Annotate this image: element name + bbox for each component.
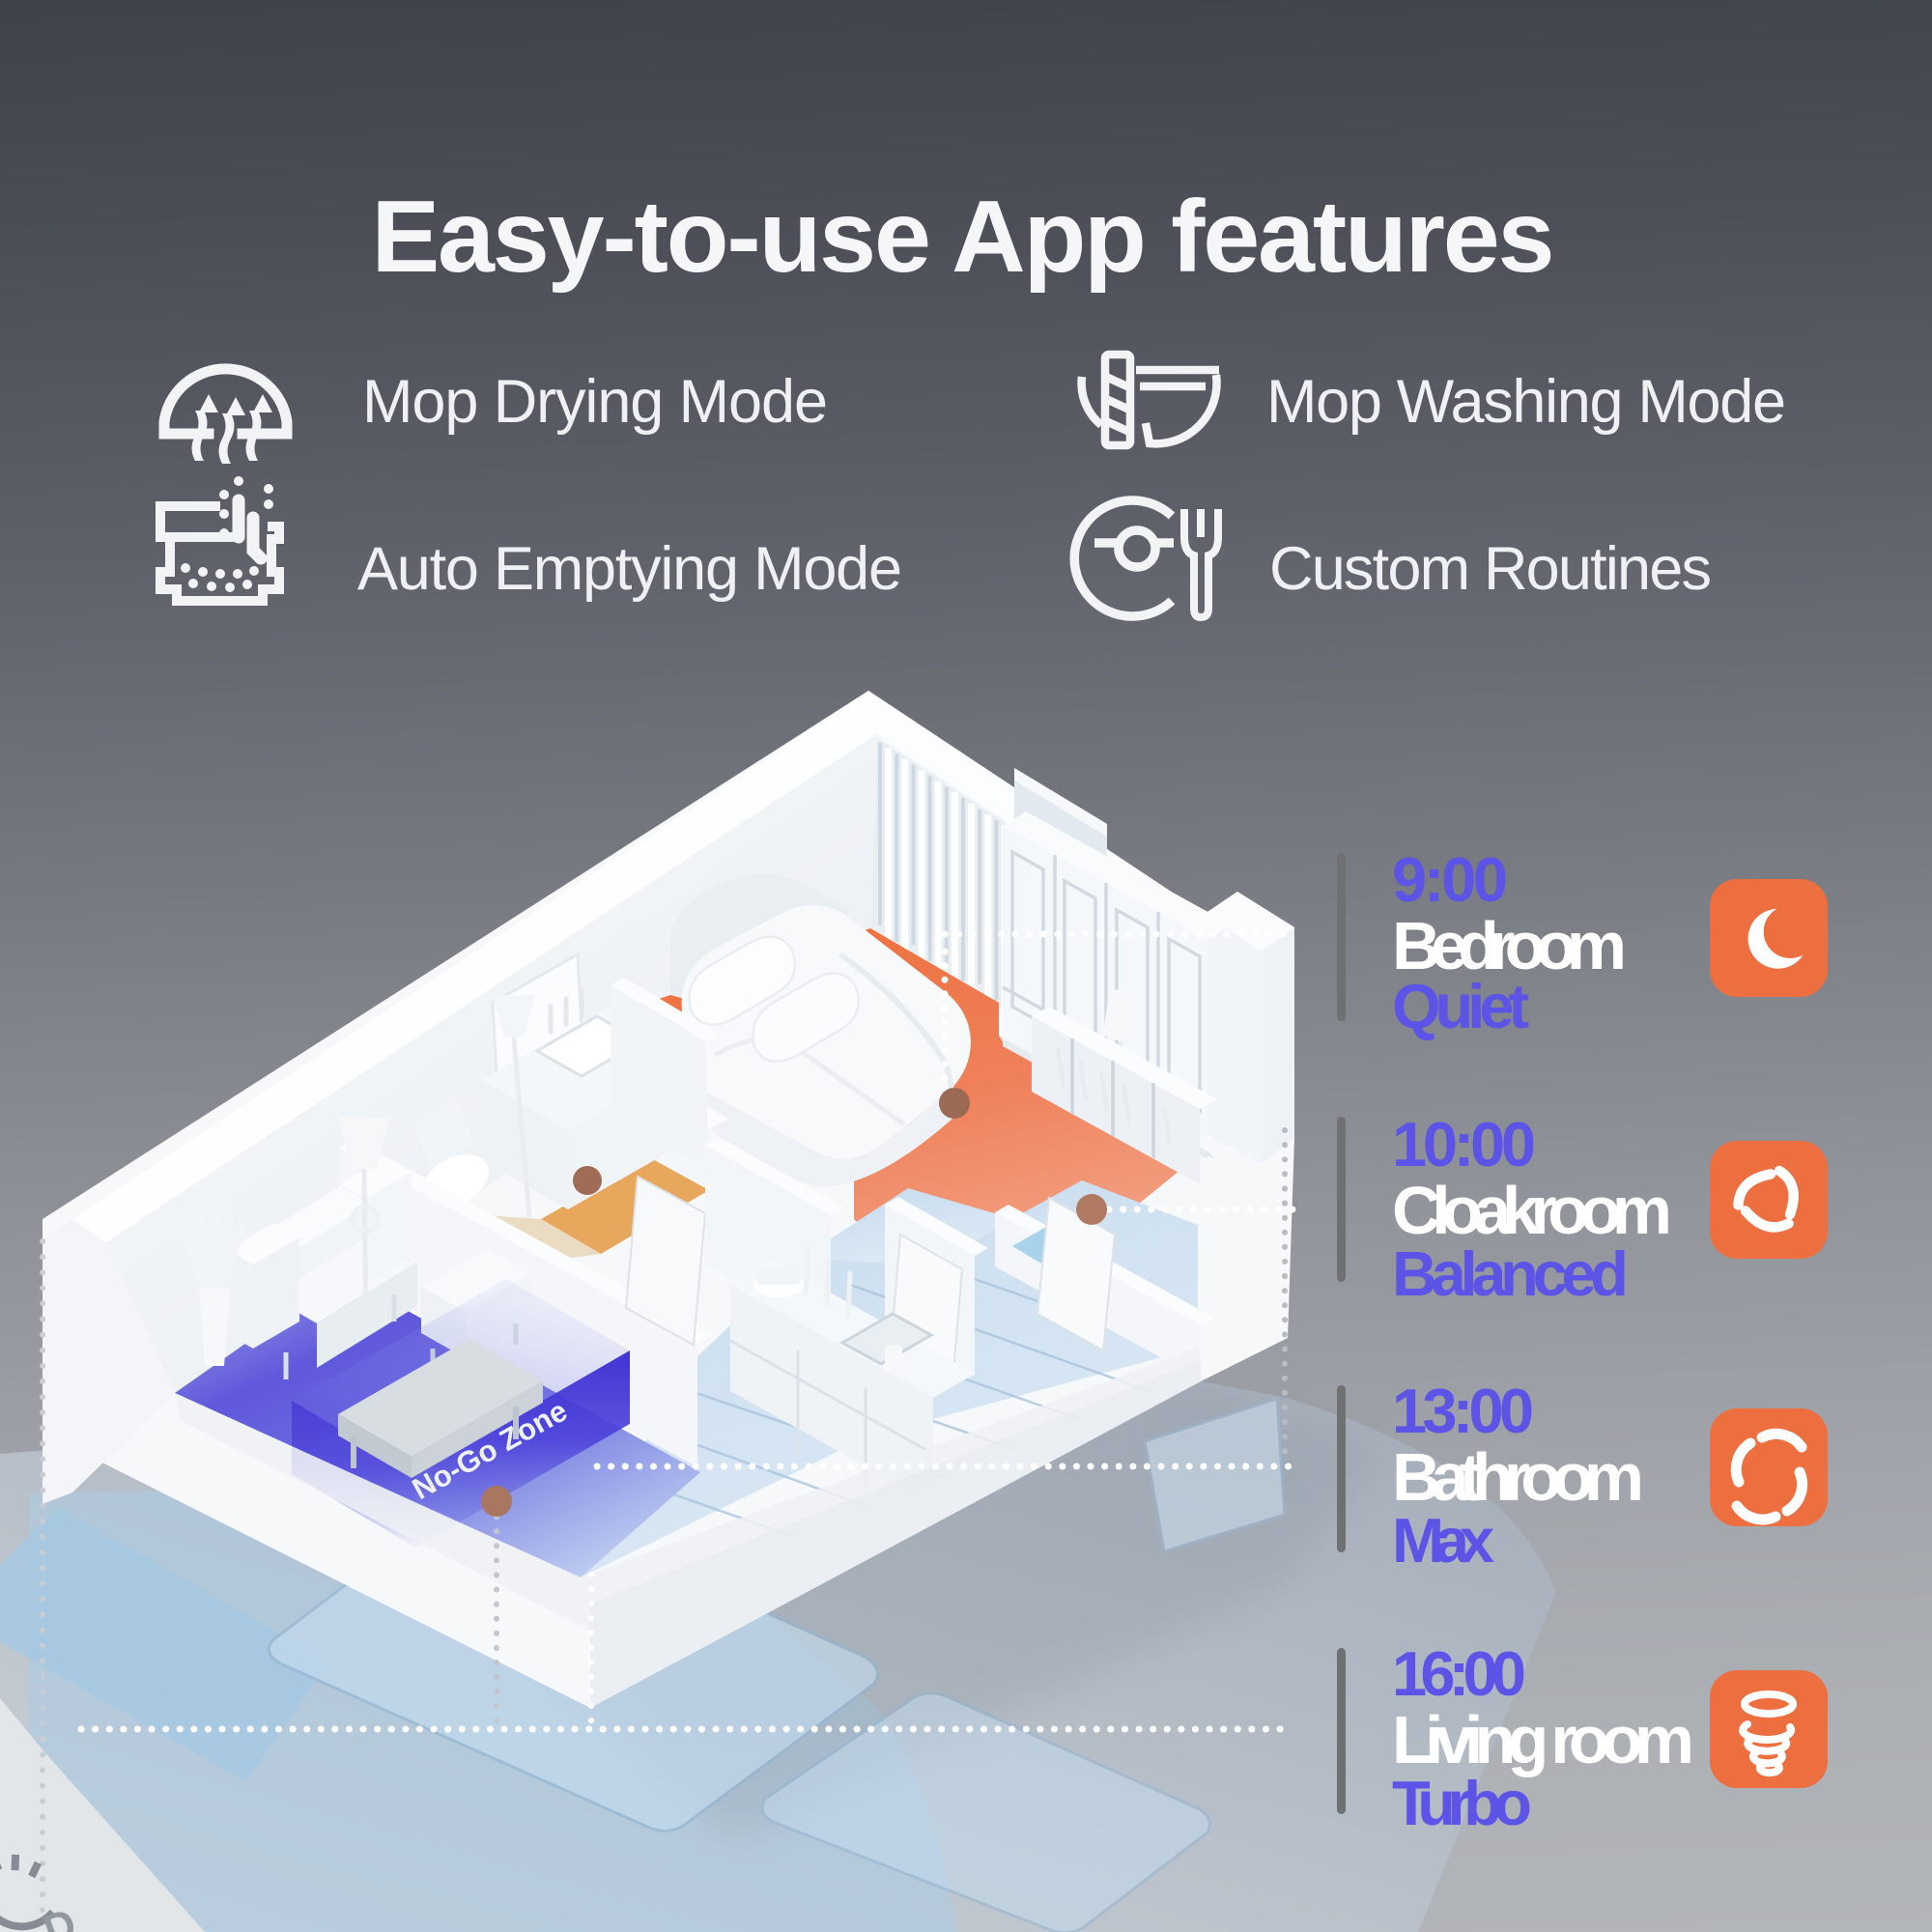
svg-text:Mop Drying Mode: Mop Drying Mode	[362, 368, 828, 436]
svg-text:13:00: 13:00	[1392, 1376, 1534, 1446]
svg-text:Custom Routines: Custom Routines	[1269, 535, 1712, 603]
svg-text:10:00: 10:00	[1392, 1109, 1536, 1179]
svg-text:Mop Washing Mode: Mop Washing Mode	[1266, 368, 1786, 436]
svg-text:Bathroom: Bathroom	[1392, 1439, 1644, 1515]
svg-text:9:00: 9:00	[1392, 844, 1508, 915]
svg-text:Cloakroom: Cloakroom	[1392, 1173, 1672, 1248]
svg-text:Quiet: Quiet	[1392, 971, 1529, 1041]
svg-text:Balanced: Balanced	[1392, 1238, 1629, 1309]
svg-text:Living room: Living room	[1392, 1702, 1694, 1777]
svg-text:Turbo: Turbo	[1392, 1768, 1532, 1838]
svg-text:Auto Emptying Mode: Auto Emptying Mode	[357, 535, 902, 603]
svg-text:Easy-to-use App features: Easy-to-use App features	[372, 180, 1555, 294]
svg-text:Max: Max	[1392, 1505, 1494, 1576]
svg-text:16:00: 16:00	[1392, 1638, 1526, 1709]
